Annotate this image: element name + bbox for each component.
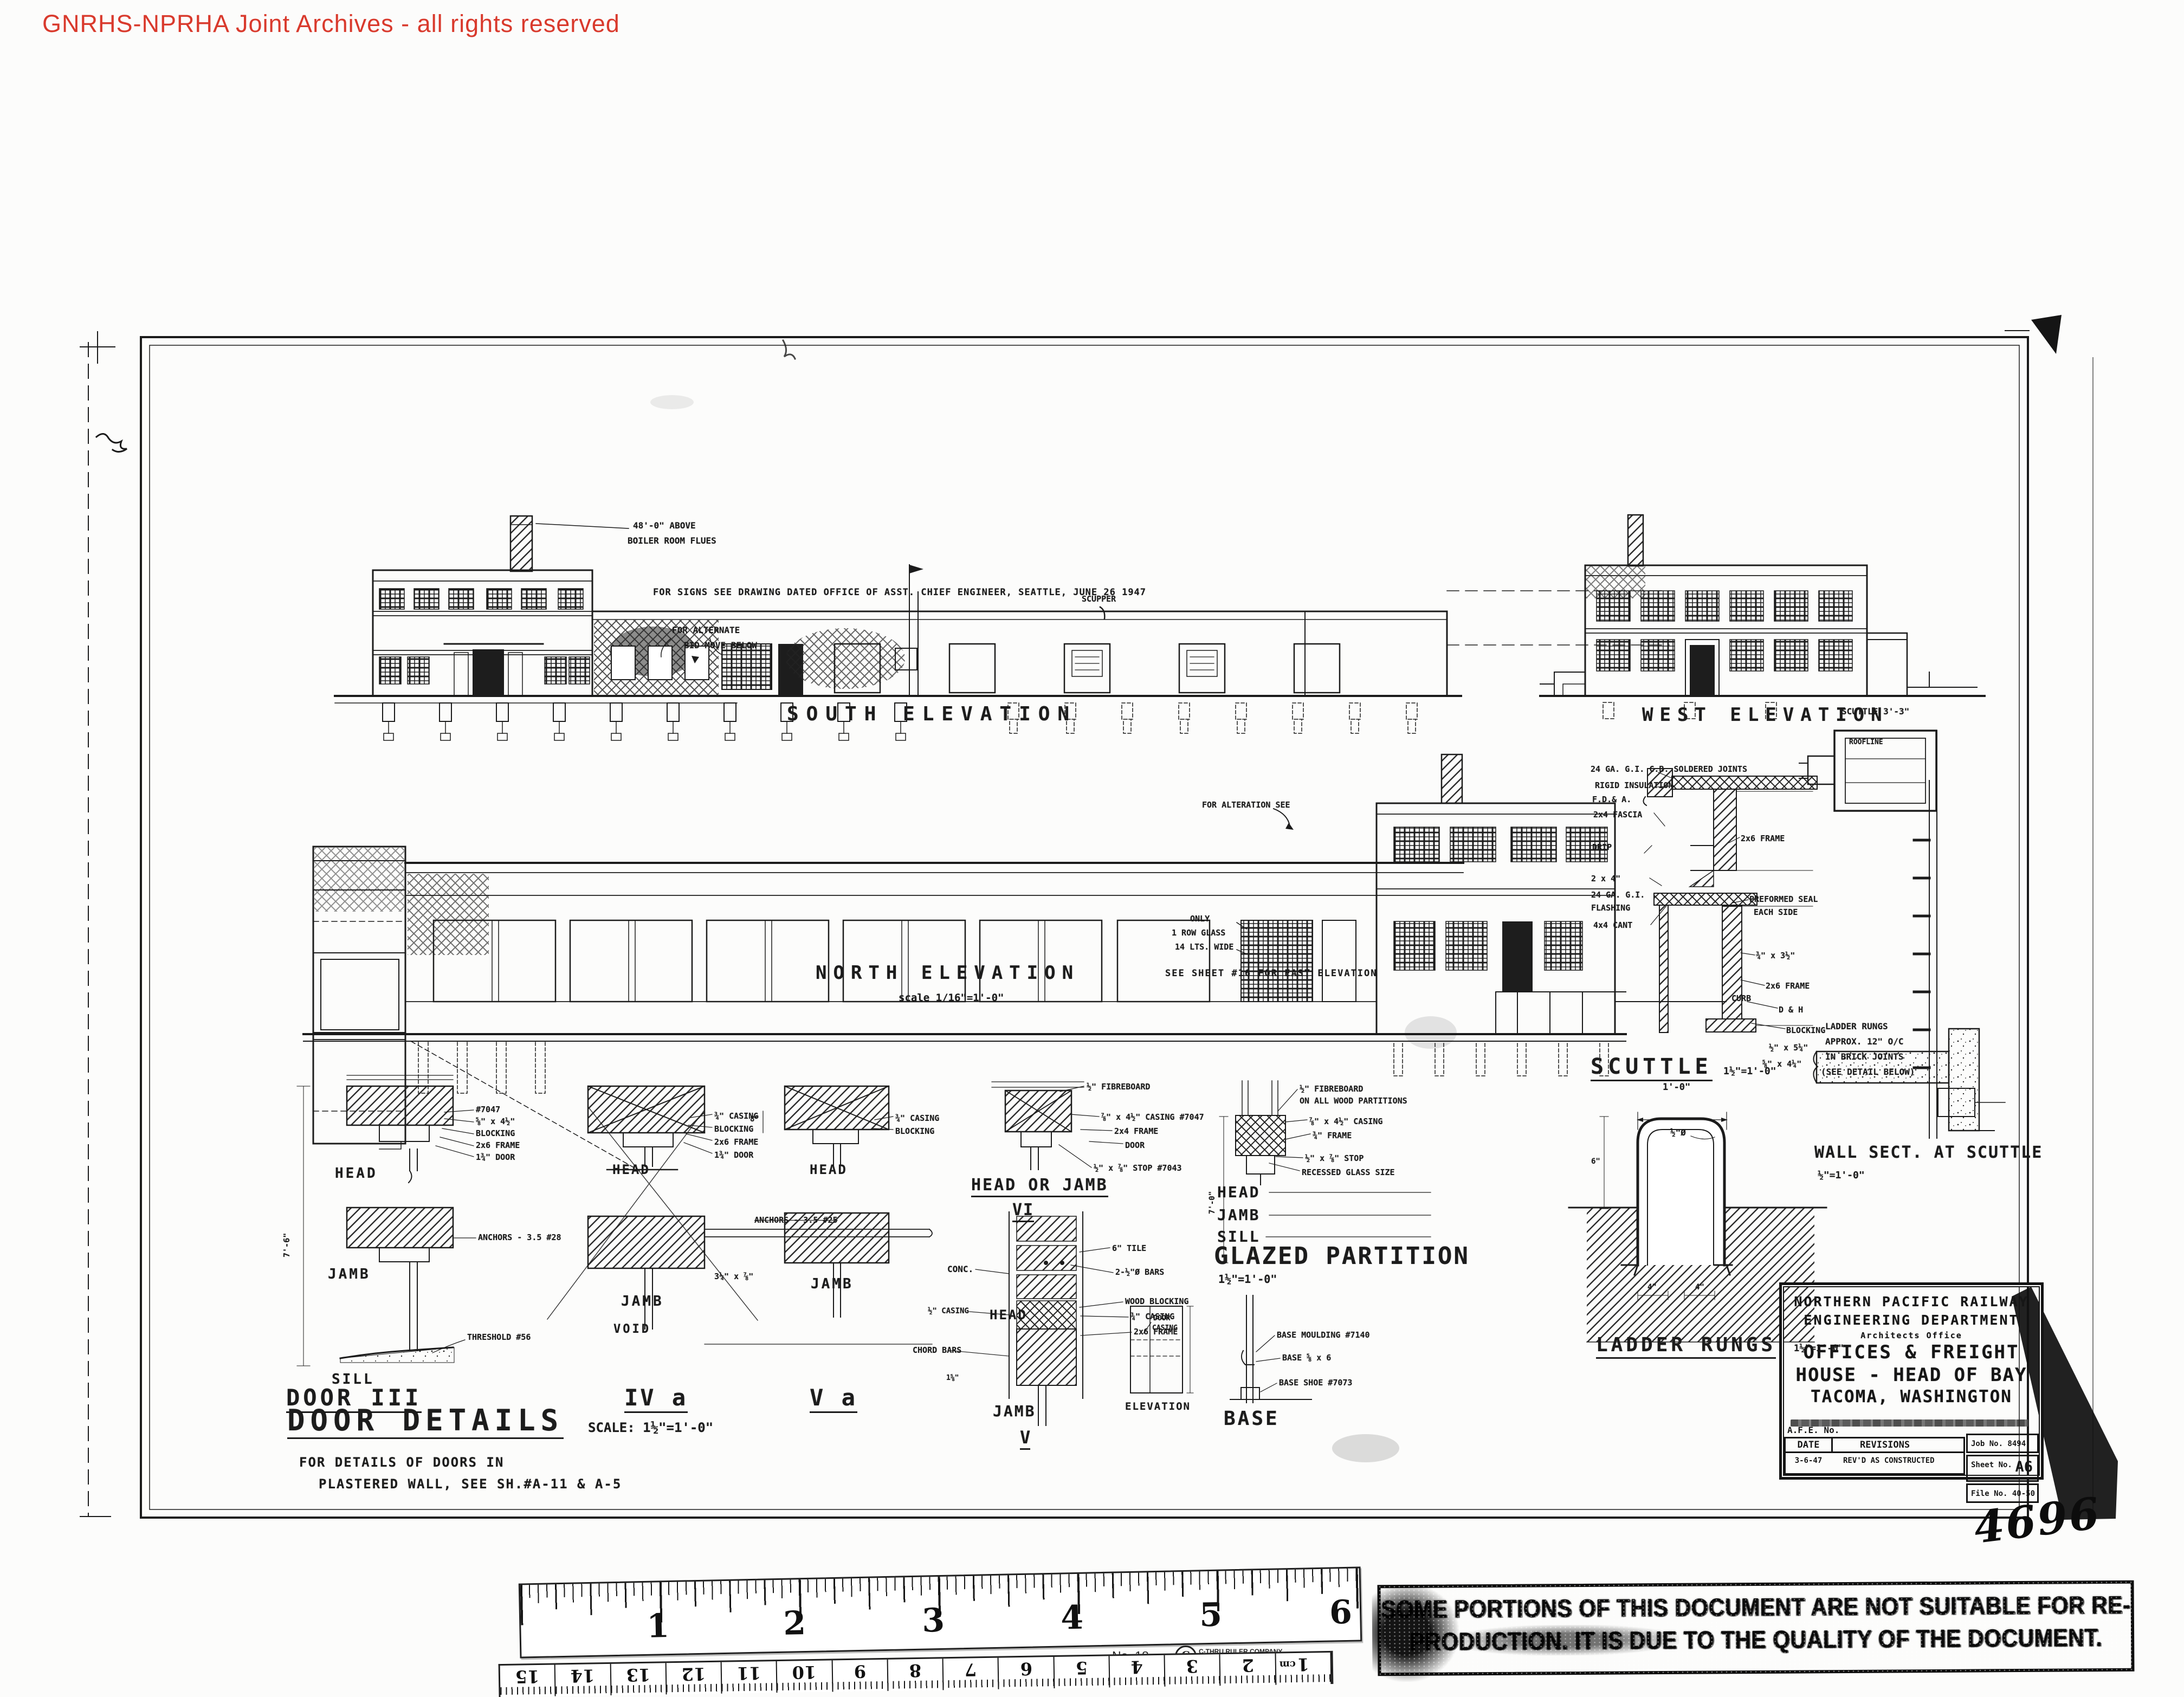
door4-dim: 3¼" x ⅞" [714, 1273, 753, 1281]
title-block-number-stack: Job No. 8494 Sheet No. A6 File No. 40-50 [1966, 1434, 2039, 1505]
job-number: Job No. 8494 [1966, 1434, 2039, 1453]
tile-ann: 2-½"Ø BARS [1115, 1268, 1164, 1276]
glazed-ann: ½" x ⅞" STOP [1305, 1154, 1364, 1163]
north-curb-label: CURB [1731, 995, 1751, 1003]
detail6-ann: ⅞" x 4½" CASING #7047 [1101, 1113, 1204, 1121]
cm-mark: 10 [792, 1662, 817, 1683]
scuttle-ann: EACH SIDE [1754, 908, 1798, 917]
north-glass-note-line1: ONLY [1190, 915, 1210, 923]
inch-mark: 5 [1199, 1596, 1223, 1635]
cm-mark: 15 [515, 1666, 540, 1687]
scuttle-plan-label: SCUTTLE 3'-3" [1841, 707, 1909, 716]
scuttle-ann: F.D.& A. [1592, 796, 1631, 804]
door-details-title: DOOR DETAILS [287, 1406, 564, 1439]
cm-mark: 13 [626, 1664, 650, 1686]
door4-label: IV a [624, 1386, 688, 1413]
glazed-partition-title: GLAZED PARTITION [1214, 1244, 1470, 1268]
tile-ann: 6" TILE [1112, 1244, 1146, 1253]
ladder-dim-diameter: ½"Ø [1670, 1128, 1686, 1137]
ladder-dim-4b: 4" [1695, 1283, 1704, 1291]
elev-detail-ann2: CASING [1152, 1325, 1178, 1332]
door4-jamb-label: JAMB [621, 1294, 664, 1308]
north-glass-note-line3: 14 LTS. WIDE [1175, 943, 1233, 951]
scuttle-ann: RIGID INSULATION [1595, 782, 1673, 790]
inch-mark: 2 [783, 1604, 806, 1643]
inch-mark: 6 [1329, 1593, 1352, 1632]
detail6-ann: DOOR [1125, 1141, 1145, 1150]
detail6-title: HEAD OR JAMB [971, 1177, 1108, 1197]
scuttle-ann: 2x6 FRAME [1766, 982, 1810, 990]
title-block-company-line2: ENGINEERING DEPARTMENT [1782, 1312, 2041, 1328]
scuttle-ann: ½" x 5¼" [1769, 1044, 1808, 1052]
scuttle-title: SCUTTLE [1591, 1056, 1713, 1081]
ladder-rungs-title: LADDER RUNGS [1596, 1335, 1776, 1359]
wall-sect-scale: ½"=1'-0" [1818, 1171, 1865, 1180]
scanned-blueprint-page: GNRHS-NPRHA Joint Archives - all rights … [0, 0, 2184, 1680]
reproduction-quality-stamp: SOME PORTIONS OF THIS DOCUMENT ARE NOT S… [1378, 1580, 2135, 1676]
scuttle-scale: 1½"=1'-0" [1723, 1067, 1776, 1076]
cm-mark: 8 [909, 1660, 921, 1681]
revision-header: REVISIONS [1833, 1438, 1963, 1451]
south-flue-note-line1: 48'-0" ABOVE [633, 521, 696, 530]
cm-mark: 14 [571, 1665, 595, 1686]
ladder-dim-6: 6" [1591, 1158, 1600, 1165]
tile-head-label: HEAD [990, 1308, 1028, 1321]
scuttle-roofline-label: ROOFLINE [1849, 739, 1883, 746]
scuttle-ann: FLASHING [1591, 904, 1630, 912]
door4-ann: 2x6 FRAME [714, 1138, 758, 1146]
scuttle-ann: 24 GA. G.I. [1591, 891, 1645, 899]
door5-ann: BLOCKING [895, 1127, 934, 1135]
scuttle-ann: DRIP [1592, 843, 1612, 851]
cm-mark: 6 [1020, 1659, 1032, 1679]
ladder-note-line1: LADDER RUNGS [1825, 1022, 1888, 1031]
cm-mark: 3 [1186, 1656, 1199, 1676]
scuttle-ann: 2x6 FRAME [1741, 835, 1785, 843]
scuttle-ann: 2x4 FASCIA [1593, 811, 1642, 819]
cm-mark: 9 [854, 1661, 866, 1681]
stamp-ink-blot2 [1451, 1624, 1679, 1656]
revision-date-header: DATE [1786, 1438, 1833, 1451]
cm-mark: 7 [965, 1659, 977, 1680]
ladder-dim-4a: 4" [1647, 1283, 1657, 1291]
door-details-scale: SCALE: 1½"=1'-0" [588, 1421, 713, 1434]
south-flue-note-line2: BOILER ROOM FLUES [628, 537, 716, 545]
tile-chord-note: CHORD BARS [913, 1346, 961, 1354]
cm-mark: 1 [1297, 1654, 1309, 1675]
door3-ann: 2x6 FRAME [476, 1141, 520, 1150]
glazed-ann: ⅞" x 4½" CASING [1309, 1118, 1382, 1126]
glazed-ann: ¾" FRAME [1313, 1132, 1352, 1140]
stamp-ink-blot [1372, 1583, 1459, 1682]
door5-dim: 8" [750, 1115, 759, 1123]
title-block-project-line3: TACOMA, WASHINGTON [1782, 1387, 2041, 1406]
south-alternate-note-line1: FOR ALTERNATE [672, 626, 740, 635]
inch-mark: 1 [647, 1607, 670, 1646]
south-alternate-note-line2: BID MOVE BELOW [684, 641, 757, 650]
door4-head-label: HEAD [612, 1163, 650, 1176]
glazed-head-label: HEAD [1217, 1185, 1260, 1200]
door3-ann: ⅝" x 4½" [476, 1118, 515, 1126]
sheet-number-box: Sheet No. A6 [1966, 1455, 2039, 1482]
door-details-note-line1: FOR DETAILS OF DOORS IN [299, 1456, 504, 1469]
north-elevation-title: NORTH ELEVATION [816, 964, 1080, 982]
cm-mark: 12 [681, 1663, 706, 1685]
door4-anchors-note: ANCHORS - 3.5 #25 [754, 1216, 838, 1224]
title-block-project-line1: OFFICES & FREIGHT [1782, 1341, 2041, 1363]
door3-height-dim: 7'-6" [283, 1233, 291, 1257]
north-alteration-note: FOR ALTERATION SEE [1202, 801, 1290, 809]
door5-head-label: HEAD [810, 1163, 848, 1176]
glazed-ann: RECESSED GLASS SIZE [1302, 1169, 1395, 1177]
door4-ann: BLOCKING [714, 1125, 753, 1133]
detail6-ann: ½" x ⅞" STOP #7043 [1094, 1164, 1182, 1172]
scuttle-ann: 2 x 4" [1591, 875, 1620, 883]
tile-conc-note: CONC. [947, 1265, 973, 1274]
revision-table: DATE REVISIONS 3-6-47 REV'D AS CONSTRUCT… [1784, 1437, 1965, 1475]
south-scupper-note: SCUPPER [1082, 595, 1116, 603]
tile-partition-detail-drawing [952, 1212, 1132, 1425]
cm-unit-label: cm [1279, 1659, 1295, 1670]
door-iii-detail-drawing [297, 1075, 476, 1366]
door3-ann: #7047 [476, 1106, 500, 1114]
title-block-company-line1: NORTHERN PACIFIC RAILWAY [1782, 1294, 2041, 1309]
sheet-number-label: Sheet No. [1971, 1461, 2012, 1469]
inch-mark: 3 [922, 1602, 945, 1640]
door3-jamb-label: JAMB [328, 1267, 371, 1281]
glazed-ann: ON ALL WOOD PARTITIONS [1300, 1097, 1407, 1105]
base-ann: BASE ⅝ x 6 [1282, 1354, 1331, 1362]
door3-threshold-note: THRESHOLD #56 [467, 1333, 531, 1341]
cm-mark: 2 [1242, 1655, 1254, 1675]
title-block: NORTHERN PACIFIC RAILWAY ENGINEERING DEP… [1779, 1282, 2044, 1480]
elev-detail-ann1: DOOR [1153, 1315, 1170, 1322]
glazed-height-dim: 7'-0" [1209, 1191, 1216, 1214]
head-or-jamb-vi-drawing [992, 1082, 1123, 1170]
scuttle-ann: 24 GA. G.I. C.B. SOLDERED JOINTS [1591, 765, 1747, 773]
ladder-dim-width: 1'-0" [1663, 1083, 1690, 1092]
tile-numeral: V [1020, 1429, 1030, 1450]
ladder-note-line4: (SEE DETAIL BELOW) [1821, 1068, 1915, 1076]
south-signs-note: FOR SIGNS SEE DRAWING DATED OFFICE OF AS… [653, 588, 1146, 597]
north-east-elevation-note: SEE SHEET #16 FOR EAST ELEVATION [1165, 969, 1378, 978]
door-details-note-line2: PLASTERED WALL, SEE SH.#A-11 & A-5 [319, 1477, 622, 1490]
detail6-numeral: VI [1012, 1202, 1034, 1222]
wall-sect-title: WALL SECT. AT SCUTTLE [1814, 1145, 2043, 1161]
scuttle-ann: BLOCKING [1786, 1027, 1825, 1035]
scuttle-ann: 4x4 CANT [1593, 921, 1632, 930]
base-detail-title: BASE [1224, 1409, 1280, 1429]
south-elevation-title: SOUTH ELEVATION [787, 705, 1077, 724]
door4-ann: 1¾" DOOR [714, 1151, 753, 1159]
glazed-ann: ½" FIBREBOARD [1300, 1085, 1363, 1093]
cm-mark: 11 [737, 1662, 761, 1683]
door5-label: V a [810, 1386, 857, 1413]
door3-ann: 1¾" DOOR [476, 1153, 515, 1162]
cm-mark: 4 [1130, 1656, 1143, 1677]
revision-date: 3-6-47 [1786, 1456, 1831, 1465]
north-elevation-scale: scale 1/16"=1'-0" [899, 993, 1004, 1003]
detail6-ann: 2x4 FRAME [1114, 1127, 1158, 1135]
revision-text: REV'D AS CONSTRUCTED [1831, 1456, 1935, 1465]
title-block-project-line2: HOUSE - HEAD OF BAY [1782, 1364, 2041, 1386]
elev-detail-title: ELEVATION [1125, 1402, 1191, 1412]
west-elevation-drawing [1540, 515, 1985, 719]
base-ann: BASE SHOE #7073 [1279, 1379, 1352, 1387]
base-ann: BASE MOULDING #7140 [1277, 1331, 1370, 1339]
door3-head-label: HEAD [335, 1166, 378, 1180]
scuttle-ann: D & H [1779, 1006, 1803, 1014]
inch-mark: 4 [1061, 1599, 1084, 1637]
door3-anchors-note: ANCHORS - 3.5 #28 [478, 1234, 561, 1242]
ladder-note-line3: IN BRICK JOINTS [1825, 1053, 1904, 1061]
north-glass-note-line2: 1 ROW GLASS [1172, 929, 1225, 937]
door5-jamb-label: JAMB [811, 1277, 854, 1291]
glazed-jamb-label: JAMB [1217, 1208, 1260, 1223]
door4-void-label: VOID [613, 1324, 651, 1335]
cm-mark: 5 [1075, 1657, 1088, 1678]
title-block-office-line: Architects Office [1782, 1331, 2041, 1340]
tile-casing-note: ½" CASING [928, 1307, 969, 1315]
sheet-number-value: A6 [2015, 1459, 2033, 1475]
door5-ann: ¾" CASING [895, 1114, 939, 1122]
scuttle-ann: PREFORMED SEAL [1749, 895, 1818, 904]
tile-jamb-label: JAMB [993, 1404, 1036, 1419]
ladder-note-line2: APPROX. 12" O/C [1825, 1037, 1904, 1046]
detail6-ann: ½" FIBREBOARD [1087, 1083, 1150, 1091]
stamp-line1: SOME PORTIONS OF THIS DOCUMENT ARE NOT S… [1381, 1591, 2131, 1624]
glazed-partition-scale: 1½"=1'-0" [1218, 1274, 1277, 1285]
scuttle-ann: ¾" x 3½" [1756, 952, 1795, 960]
tile-ann: WOOD BLOCKING [1125, 1298, 1188, 1306]
tile-dim: 1⅝" [946, 1375, 959, 1382]
title-block-afe-label: A.F.E. No. [1787, 1425, 1839, 1435]
door3-ann: BLOCKING [476, 1130, 515, 1138]
